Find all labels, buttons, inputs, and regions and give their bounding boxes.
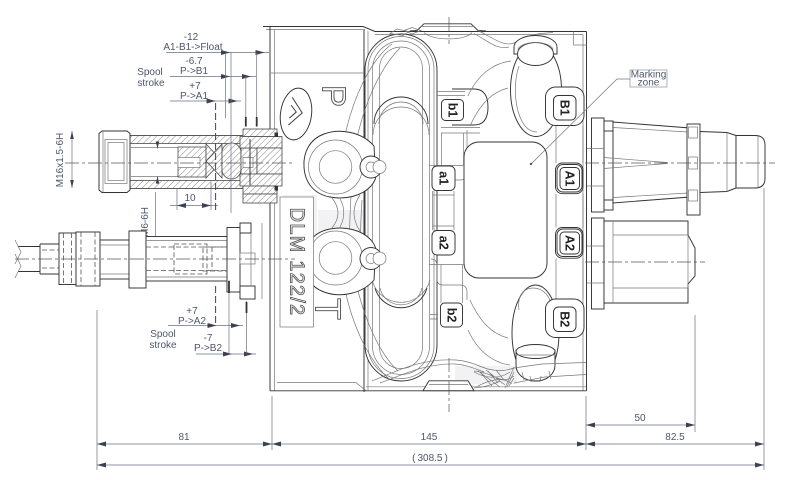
svg-text:a2: a2 bbox=[437, 236, 451, 250]
svg-text:145: 145 bbox=[421, 432, 438, 443]
svg-text:50: 50 bbox=[634, 413, 646, 424]
svg-text:stroke: stroke bbox=[137, 78, 165, 89]
svg-text:b1: b1 bbox=[446, 103, 460, 118]
svg-text:A2: A2 bbox=[563, 235, 577, 251]
svg-text:81: 81 bbox=[178, 432, 190, 443]
svg-text:T: T bbox=[308, 298, 349, 320]
svg-text:B2: B2 bbox=[558, 311, 572, 327]
svg-text:P->A1: P->A1 bbox=[180, 91, 209, 102]
svg-text:stroke: stroke bbox=[149, 340, 177, 351]
svg-text:82.5: 82.5 bbox=[665, 432, 685, 443]
svg-text:Spool: Spool bbox=[150, 329, 176, 340]
svg-text:( 308.5 ): ( 308.5 ) bbox=[412, 453, 448, 464]
svg-text:B1: B1 bbox=[558, 100, 572, 116]
svg-text:M16x1.5-6H: M16x1.5-6H bbox=[55, 133, 66, 187]
svg-text:Spool: Spool bbox=[137, 67, 163, 78]
svg-text:P->B2: P->B2 bbox=[194, 343, 223, 354]
svg-text:a1: a1 bbox=[437, 171, 451, 185]
svg-text:DLM 122/2: DLM 122/2 bbox=[286, 208, 308, 317]
svg-text:10: 10 bbox=[184, 193, 196, 204]
svg-text:b2: b2 bbox=[445, 308, 459, 323]
svg-text:zone: zone bbox=[638, 78, 660, 89]
svg-text:A1-B1->Float: A1-B1->Float bbox=[163, 42, 222, 53]
svg-text:P: P bbox=[316, 85, 353, 107]
svg-text:A1: A1 bbox=[563, 171, 577, 187]
svg-text:P->B1: P->B1 bbox=[180, 66, 209, 77]
